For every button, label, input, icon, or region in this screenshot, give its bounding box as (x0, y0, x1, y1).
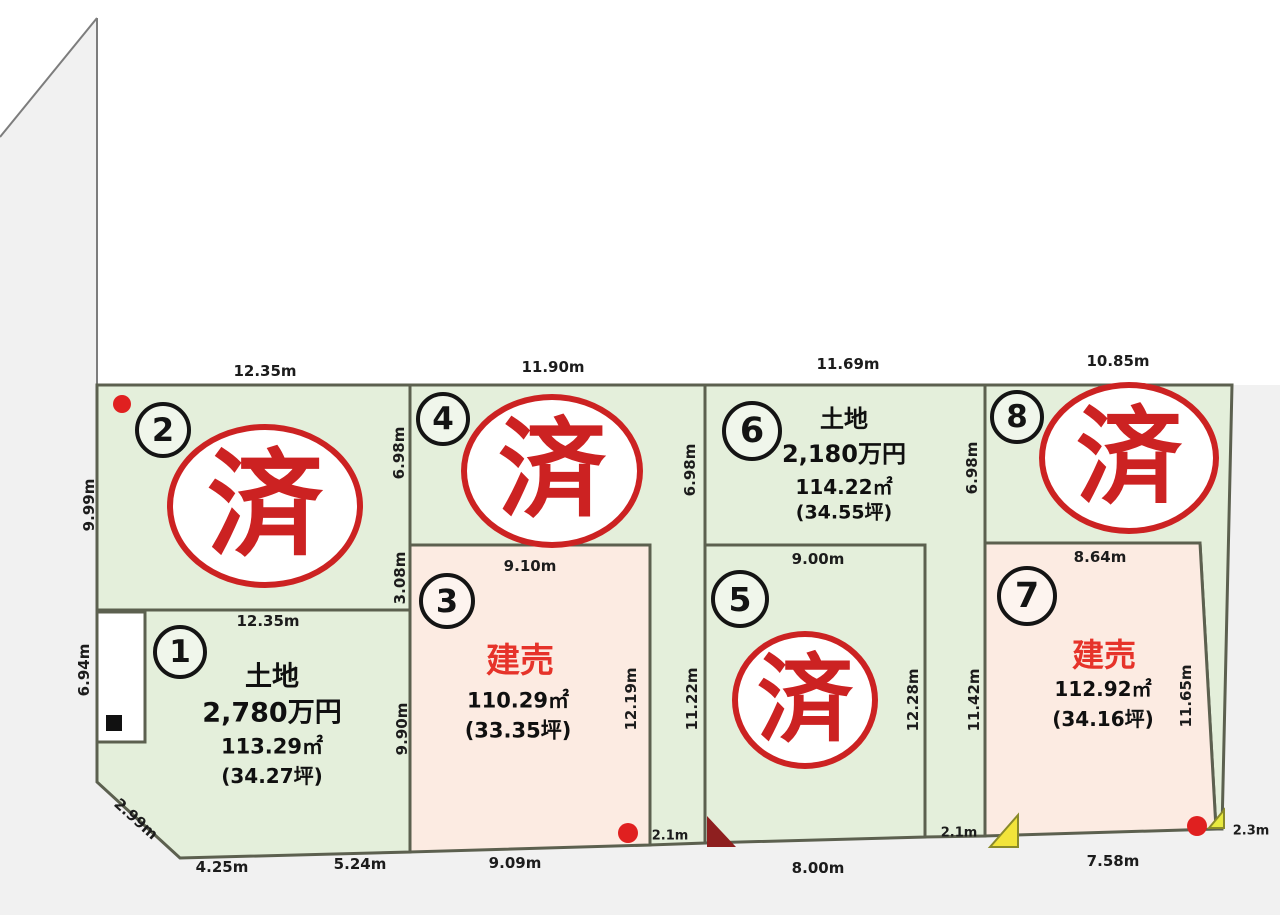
lot6-area: 114.22㎡ (795, 477, 892, 497)
lot7-number-text: 7 (1015, 579, 1039, 614)
lot7-type-label: 建売 (1072, 639, 1136, 671)
land-plot-map: 2 1 4 3 6 5 8 7 済 済 済 済 土地 2,780万円 113.2… (0, 0, 1280, 915)
lot5-number-text: 5 (729, 583, 752, 616)
lot7-area: 112.92㎡ (1054, 679, 1151, 699)
lot3-number: 3 (419, 573, 475, 629)
dim-strip8-width: 2.3m (1233, 824, 1270, 839)
sold-stamp-lot5-text: 済 (757, 652, 853, 748)
lot4-number-text: 4 (432, 404, 454, 435)
dim-strip4-width: 2.1m (652, 829, 689, 844)
lot3-area: 110.29㎡ (467, 691, 569, 712)
lot3-tsubo: (33.35坪) (465, 721, 572, 742)
background-white-region (0, 0, 1280, 385)
dim-top-lot4: 11.90m (521, 358, 584, 376)
black-square-marker (106, 715, 122, 731)
red-dot-marker-lot2 (113, 395, 131, 413)
sold-stamp-lot8-text: 済 (1076, 405, 1182, 511)
dim-top-lot8: 10.85m (1086, 352, 1149, 370)
sold-stamp-lot4-text: 済 (498, 417, 606, 525)
lot2-number-text: 2 (152, 414, 174, 446)
dim-lot1-bottom-right: 5.24m (334, 855, 387, 873)
dim-lot7-left: 11.42m (965, 668, 983, 731)
dim-edge4-upper: 6.98m (963, 442, 981, 495)
lot1-tsubo: (34.27坪) (221, 766, 323, 786)
lot4-number: 4 (416, 392, 470, 446)
dim-edge2-upper: 6.98m (390, 427, 408, 480)
dim-lot3-top: 9.10m (504, 557, 557, 575)
dim-lot5-right: 12.28m (904, 668, 922, 731)
dim-lot5-left: 11.22m (683, 667, 701, 730)
lot5-number: 5 (711, 570, 769, 628)
lot2-number: 2 (135, 402, 191, 458)
dim-edge2-lower: 9.90m (393, 703, 411, 756)
lot6-price: 2,180万円 (782, 442, 906, 466)
lot1-number: 1 (153, 625, 207, 679)
dim-lot3-bottom: 9.09m (489, 854, 542, 872)
lot8-number-text: 8 (1006, 402, 1028, 433)
dim-lot7-top: 8.64m (1074, 548, 1127, 566)
dim-left-upper: 9.99m (80, 479, 98, 532)
lot7-number: 7 (997, 566, 1057, 626)
lot1-area: 113.29㎡ (221, 737, 323, 758)
dim-top-lot2: 12.35m (233, 362, 296, 380)
dim-lot1-bottom-left: 4.25m (196, 858, 249, 876)
lot6-type-label: 土地 (820, 407, 868, 431)
dim-top-lot6: 11.69m (816, 355, 879, 373)
dim-edge3-upper: 6.98m (681, 444, 699, 497)
dim-left-lower: 6.94m (75, 644, 93, 697)
dim-lot3-right: 12.19m (622, 667, 640, 730)
dim-lot5-bottom: 8.00m (792, 859, 845, 877)
lot3-type-label: 建売 (486, 644, 554, 678)
dim-lot5-top: 9.00m (792, 550, 845, 568)
sold-stamp-lot4: 済 (461, 394, 643, 548)
lot1-type-label: 土地 (245, 664, 299, 691)
sold-stamp-lot2-text: 済 (207, 448, 323, 564)
dim-lot7-right: 11.65m (1177, 664, 1195, 727)
lot3-number-text: 3 (436, 585, 458, 617)
lot1-number-text: 1 (169, 637, 191, 668)
red-dot-marker-lot3 (618, 823, 638, 843)
lot6-number: 6 (722, 401, 782, 461)
dim-edge2-mid: 3.08m (391, 552, 409, 605)
red-dot-marker-lot7 (1187, 816, 1207, 836)
lot1-price: 2,780万円 (202, 700, 341, 727)
sold-stamp-lot5: 済 (732, 631, 878, 769)
sold-stamp-lot2: 済 (167, 424, 363, 588)
lot7-tsubo: (34.16坪) (1052, 709, 1154, 729)
dim-lot7-bottom: 7.58m (1087, 852, 1140, 870)
dim-lot1-top: 12.35m (236, 612, 299, 630)
lot6-tsubo: (34.55坪) (796, 504, 892, 523)
lot8-number: 8 (990, 390, 1044, 444)
dim-strip6-width: 2.1m (941, 826, 978, 841)
sold-stamp-lot8: 済 (1039, 382, 1219, 534)
lot6-number-text: 6 (740, 414, 764, 449)
